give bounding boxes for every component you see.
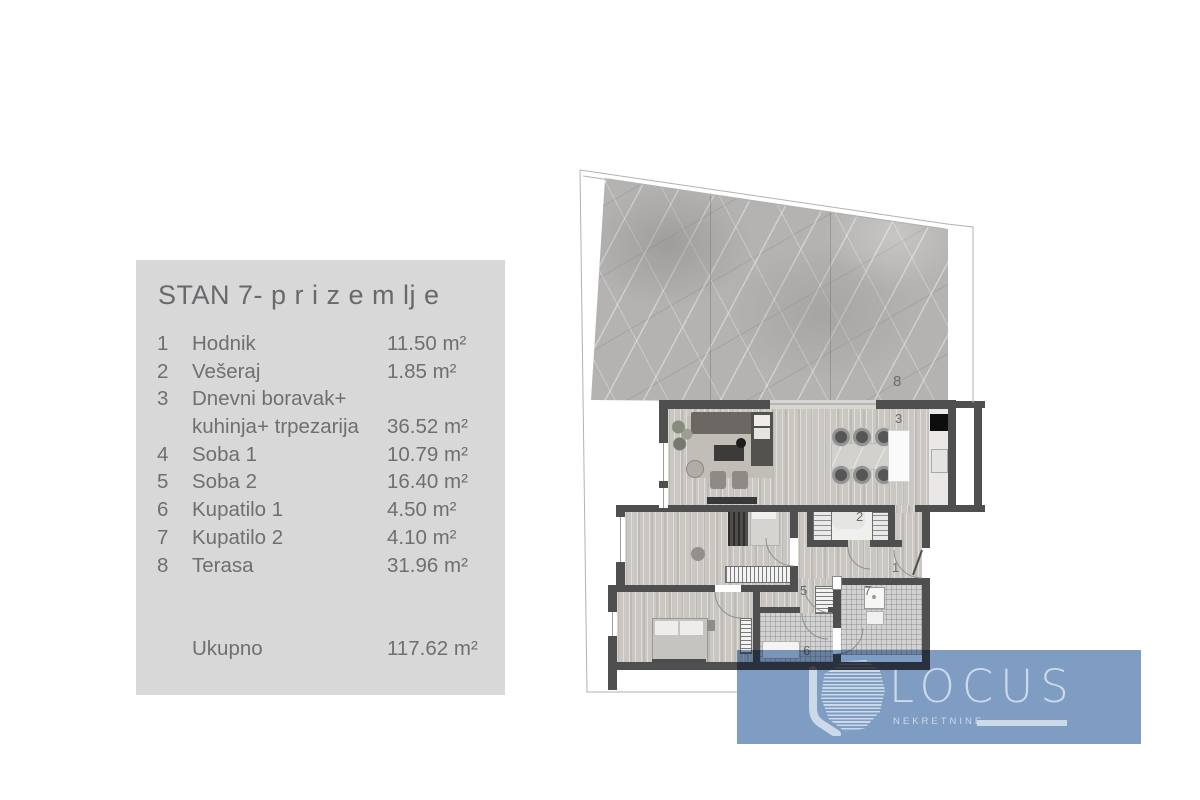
radiator (740, 618, 752, 654)
logo-subtitle: NEKRETNINE (893, 716, 984, 727)
bathroom-sink (866, 611, 884, 625)
list-item: 6 Kupatilo 1 4.50 m² (136, 496, 505, 524)
locus-logo-banner: LOCUS NEKRETNINE (737, 650, 1141, 744)
window (659, 443, 668, 481)
wall (956, 401, 985, 408)
window (616, 517, 625, 562)
room-list: 1 Hodnik 11.50 m² 2 Vešeraj 1.85 m² 3 Dn… (136, 330, 505, 579)
list-item: 8 Terasa 31.96 m² (136, 552, 505, 580)
room-area: 31.96 m² (387, 552, 468, 580)
wall (659, 400, 770, 409)
tv-cabinet (707, 497, 757, 504)
room-area: 4.10 m² (387, 524, 457, 552)
wall (870, 540, 902, 547)
room-number: 7 (157, 524, 168, 552)
logo-underline-bar (977, 720, 1067, 726)
bed-pillow (655, 621, 678, 635)
room-label-living: 3 (895, 411, 902, 426)
total-area: 117.62 m² (387, 635, 478, 663)
wall (760, 607, 800, 613)
window (608, 612, 617, 636)
wall (876, 400, 956, 409)
pouf (686, 460, 704, 478)
room-area: 16.40 m² (387, 468, 468, 496)
passage-floor (895, 505, 915, 513)
room-label-bedroom2: 5 (800, 583, 807, 598)
room-name: Vešeraj (192, 358, 260, 386)
room-number: 4 (157, 441, 168, 469)
room-label-laundry: 2 (856, 509, 863, 524)
legend-panel: STAN 7- p r i z e m lj e 1 Hodnik 11.50 … (136, 260, 505, 695)
room-area: 4.50 m² (387, 496, 457, 524)
wall (974, 408, 982, 512)
room-name: Terasa (192, 552, 254, 580)
side-table (736, 438, 746, 448)
terrace-floor (591, 178, 948, 403)
total-row: Ukupno 117.62 m² (136, 635, 505, 663)
kitchen-sink (931, 449, 948, 473)
room-number: 5 (157, 468, 168, 496)
apartment-title: STAN 7- p r i z e m lj e (158, 280, 440, 311)
list-item: 4 Soba 1 10.79 m² (136, 441, 505, 469)
wall (608, 585, 617, 690)
door-opening (715, 585, 741, 592)
room-area: 1.85 m² (387, 358, 457, 386)
dining-chair (832, 428, 850, 446)
door-leaf (832, 576, 842, 590)
door-opening (790, 538, 798, 566)
list-item: 1 Hodnik 11.50 m² (136, 330, 505, 358)
total-label: Ukupno (192, 635, 263, 663)
pouf (691, 547, 705, 561)
room-number: 2 (157, 358, 168, 386)
radiator (725, 566, 791, 583)
wall (832, 578, 922, 585)
list-item: 7 Kupatilo 2 4.10 m² (136, 524, 505, 552)
wall (608, 585, 798, 592)
room-number: 8 (157, 552, 168, 580)
room-number: 1 (157, 330, 168, 358)
wardrobe (728, 508, 748, 546)
room-name: Kupatilo 1 (192, 496, 283, 524)
list-item: 5 Soba 2 16.40 m² (136, 468, 505, 496)
bed-pillow (680, 621, 703, 635)
room-name: Kupatilo 2 (192, 524, 283, 552)
plant (670, 418, 694, 454)
dining-chair (853, 466, 871, 484)
sofa-pillow (754, 428, 770, 439)
real-estate-floorplan-flyer: STAN 7- p r i z e m lj e 1 Hodnik 11.50 … (0, 0, 1200, 800)
dining-chair (832, 466, 850, 484)
dining-chair (853, 428, 871, 446)
sofa-pillow (754, 415, 770, 426)
sideboard (888, 430, 910, 482)
wall (807, 540, 848, 547)
cooktop (930, 414, 948, 431)
list-item: 3 Dnevni boravak+ kuhinja+ trpezarija 36… (136, 385, 505, 440)
room-label-hall: 1 (892, 560, 899, 575)
room-name: Soba 2 (192, 468, 257, 496)
wall (616, 505, 895, 512)
room-name: Dnevni boravak+ (192, 385, 346, 413)
room-name-line2: kuhinja+ trpezarija (192, 413, 359, 441)
room-area: 10.79 m² (387, 441, 468, 469)
list-item: 2 Vešeraj 1.85 m² (136, 358, 505, 386)
armchair (710, 471, 726, 489)
window (659, 488, 668, 508)
room-number: 3 (157, 385, 168, 413)
wall (948, 400, 956, 512)
room-area: 36.52 m² (387, 413, 468, 441)
wall (922, 505, 930, 548)
room-name: Soba 1 (192, 441, 257, 469)
shower-drain-icon (872, 595, 876, 599)
terrace-seam (710, 178, 711, 403)
terrace-sliding-door (770, 403, 876, 405)
armchair (732, 471, 748, 489)
room-area: 11.50 m² (387, 330, 466, 358)
floorplan: 8 3 2 1 5 7 6 (573, 142, 1082, 698)
logo-wordmark: LOCUS (889, 664, 1076, 709)
nightstand (707, 620, 715, 631)
room-name: Hodnik (192, 330, 256, 358)
room-label-bath2: 7 (864, 583, 871, 598)
room-number: 6 (157, 496, 168, 524)
room-label-terrace: 8 (893, 373, 901, 390)
terrace-seam (830, 178, 831, 403)
